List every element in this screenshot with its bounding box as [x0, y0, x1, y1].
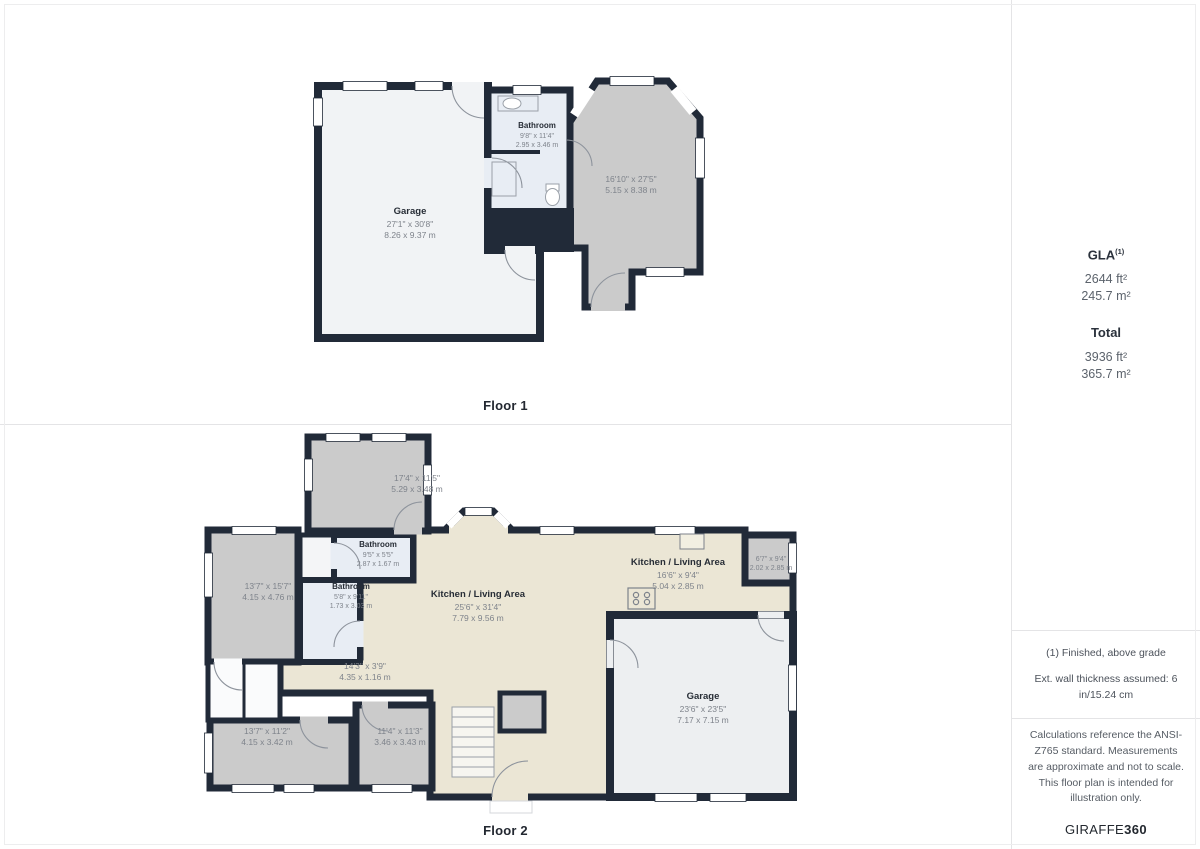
room-dim-metric: 5.15 x 8.38 m — [605, 185, 657, 196]
floor2-closet2-shape — [500, 693, 544, 731]
room-label-bottom-left-room: 13'7" x 11'2" 4.15 x 3.42 m — [241, 726, 293, 748]
footnotes: (1) Finished, above grade Ext. wall thic… — [1012, 630, 1200, 718]
room-dim-imperial: 16'10" x 27'5" — [605, 174, 657, 185]
room-dim-imperial: 5'8" x 9'11" — [330, 593, 372, 602]
room-dim-imperial: 9'8" x 11'4" — [516, 132, 558, 141]
room-label-bottom-mid-room: 11'4" x 11'3" 3.46 x 3.43 m — [374, 726, 426, 748]
bay-junction — [449, 526, 508, 534]
room-label-small-room: 6'7" x 9'4" 2.02 x 2.85 m — [750, 555, 792, 573]
room-dim-imperial: 27'1" x 30'8" — [384, 219, 436, 230]
gla-label: GLA(1) — [1088, 247, 1125, 262]
room-name: Bathroom — [357, 540, 399, 551]
logo-giraffe: GIRAFFE — [1065, 822, 1124, 837]
floor1-caption: Floor 1 — [0, 398, 1011, 413]
sink-icon — [503, 98, 521, 109]
room-name: Kitchen / Living Area — [631, 557, 725, 570]
room-label-left-room: 13'7" x 15'7" 4.15 x 4.76 m — [242, 581, 294, 603]
entry-step — [490, 801, 532, 813]
floor2-panel: 17'4" x 11'5" 5.29 x 3.48 m 13'7" x 15'7… — [0, 425, 1011, 849]
room-name: Garage — [384, 206, 436, 219]
gla-label-text: GLA — [1088, 247, 1115, 262]
giraffe360-logo: GIRAFFE360 — [1065, 820, 1147, 840]
total-label: Total — [1091, 325, 1121, 340]
room-label-garage: Garage 27'1" x 30'8" 8.26 x 9.37 m — [384, 206, 436, 241]
footnote-finished-grade: (1) Finished, above grade — [1028, 646, 1184, 661]
floor1-wall-block — [484, 208, 574, 252]
room-name: Garage — [677, 691, 729, 704]
room-dim-metric: 8.26 x 9.37 m — [384, 230, 436, 241]
room-dim-imperial: 14'3" x 3'9" — [339, 661, 391, 672]
room-dim-imperial: 25'6" x 31'4" — [431, 602, 525, 613]
room-dim-imperial: 9'5" x 5'5" — [357, 551, 399, 560]
total-sqm: 365.7 m² — [1081, 366, 1130, 383]
floor2-closet-shape — [300, 535, 334, 580]
room-dim-imperial: 6'7" x 9'4" — [750, 555, 792, 564]
sink-icon — [680, 534, 704, 549]
plans-column: Garage 27'1" x 30'8" 8.26 x 9.37 m Bathr… — [0, 0, 1012, 849]
room-dim-metric: 4.15 x 4.76 m — [242, 592, 294, 603]
room-dim-metric: 7.79 x 9.56 m — [431, 613, 525, 624]
room-label-top-room: 17'4" x 11'5" 5.29 x 3.48 m — [391, 473, 443, 495]
room-dim-metric: 2.87 x 1.67 m — [357, 560, 399, 569]
room-dim-imperial: 13'7" x 15'7" — [242, 581, 294, 592]
room-dim-imperial: 17'4" x 11'5" — [391, 473, 443, 484]
room-dim-metric: 2.02 x 2.85 m — [750, 564, 792, 573]
room-dim-metric: 3.46 x 3.43 m — [374, 737, 426, 748]
room-dim-imperial: 23'6" x 23'5" — [677, 704, 729, 715]
room-dim-metric: 5.04 x 2.85 m — [631, 581, 725, 592]
gla-sqft: 2644 ft² — [1085, 271, 1127, 288]
disclaimer-text: Calculations reference the ANSI-Z765 sta… — [1027, 728, 1185, 807]
room-label-hallway: 14'3" x 3'9" 4.35 x 1.16 m — [339, 661, 391, 683]
bay-top-window — [465, 508, 492, 516]
room-dim-imperial: 13'7" x 11'2" — [241, 726, 293, 737]
room-label-bathroom-mid: Bathroom 5'8" x 9'11" 1.73 x 3.03 m — [330, 582, 372, 611]
stairs-icon — [452, 707, 494, 777]
room-label-kitchen-main: Kitchen / Living Area 25'6" x 31'4" 7.79… — [431, 589, 525, 624]
logo-360: 360 — [1124, 822, 1147, 837]
gla-footnote-marker: (1) — [1115, 247, 1124, 256]
room-name: Bathroom — [516, 121, 558, 132]
room-name: Kitchen / Living Area — [431, 589, 525, 602]
room-label-bathroom-top: Bathroom 9'5" x 5'5" 2.87 x 1.67 m — [357, 540, 399, 569]
room-dim-imperial: 11'4" x 11'3" — [374, 726, 426, 737]
room-label-kitchen-right: Kitchen / Living Area 16'6" x 9'4" 5.04 … — [631, 557, 725, 592]
room-label-garage2: Garage 23'6" x 23'5" 7.17 x 7.15 m — [677, 691, 729, 726]
room-dim-metric: 5.29 x 3.48 m — [391, 484, 443, 495]
room-label-bathroom: Bathroom 9'8" x 11'4" 2.95 x 3.46 m — [516, 121, 558, 150]
room-dim-imperial: 16'6" x 9'4" — [631, 570, 725, 581]
room-dim-metric: 4.35 x 1.16 m — [339, 672, 391, 683]
floor1-drawing — [0, 0, 1011, 424]
floor1-panel: Garage 27'1" x 30'8" 8.26 x 9.37 m Bathr… — [0, 0, 1011, 425]
room-dim-metric: 4.15 x 3.42 m — [241, 737, 293, 748]
floor2-drawing — [0, 425, 1011, 849]
footnote-wall-thickness: Ext. wall thickness assumed: 6 in/15.24 … — [1028, 672, 1184, 702]
room-dim-metric: 7.17 x 7.15 m — [677, 715, 729, 726]
total-sqft: 3936 ft² — [1085, 349, 1127, 366]
room-dim-metric: 2.95 x 3.46 m — [516, 141, 558, 150]
floor2-caption: Floor 2 — [0, 823, 1011, 838]
room-dim-metric: 1.73 x 3.03 m — [330, 602, 372, 611]
gla-sqm: 245.7 m² — [1081, 288, 1130, 305]
measurements-sidebar: GLA(1) 2644 ft² 245.7 m² Total 3936 ft² … — [1012, 0, 1200, 849]
room-label-right-room: 16'10" x 27'5" 5.15 x 8.38 m — [605, 174, 657, 196]
floorplan-page: Garage 27'1" x 30'8" 8.26 x 9.37 m Bathr… — [0, 0, 1200, 849]
area-stats: GLA(1) 2644 ft² 245.7 m² Total 3936 ft² … — [1012, 0, 1200, 630]
disclaimer-section: Calculations reference the ANSI-Z765 sta… — [1012, 718, 1200, 849]
room-name: Bathroom — [330, 582, 372, 593]
